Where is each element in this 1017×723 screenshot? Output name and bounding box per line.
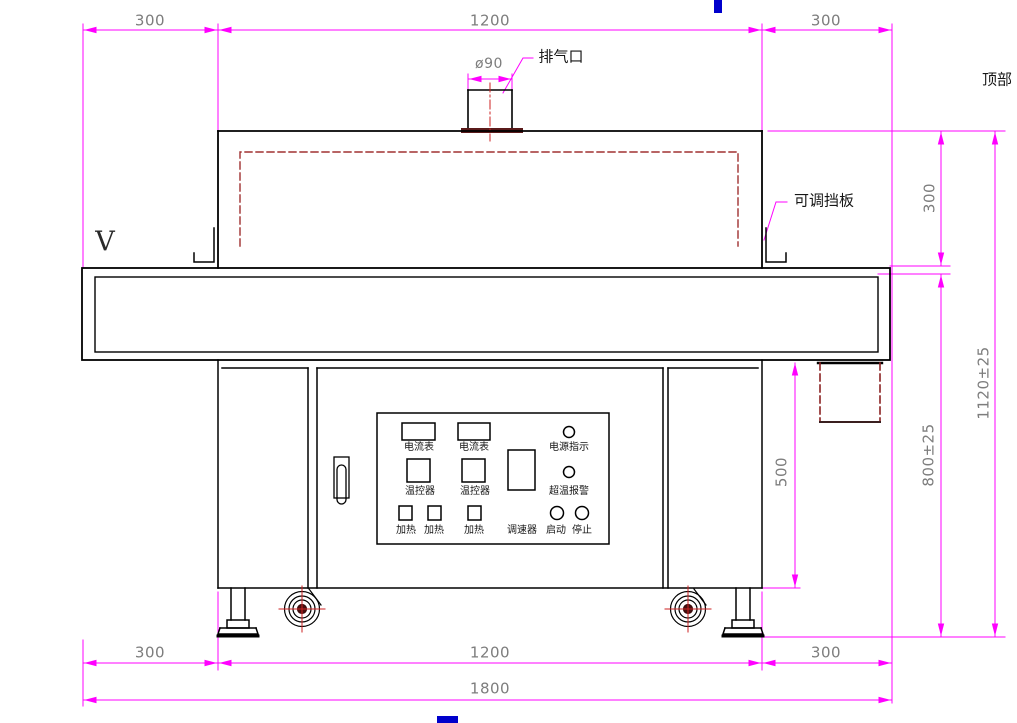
ammeter-1-label: 电流表 [404,443,434,453]
cursor-mark-top [714,0,722,13]
dim-bottom-center: 1200 [470,646,510,661]
ammeter-1-display [402,423,435,440]
heater-switch-1 [399,506,412,520]
ammeter-2-display [458,423,490,440]
left-leveling-foot [218,588,258,636]
dim-top-center: 1200 [470,14,510,29]
cursor-marks [437,0,722,723]
lower-cabinet [218,360,762,588]
power-indicator-label: 电源指示 [549,443,589,453]
heater-1-label: 加热 [396,526,416,536]
adjustable-baffle-label: 可调挡板 [794,194,854,209]
dim-work-height: 800±25 [922,423,937,486]
drawing-canvas: 300 1200 300 ø90 排气口 顶部 可调挡板 V 300 1120±… [0,0,1017,723]
right-caster [665,586,711,632]
dim-cabinet-height: 500 [775,457,790,487]
side-mount-box [818,363,882,422]
exhaust-leader-line [503,58,533,93]
heater-3-label: 加热 [464,526,484,536]
drawing-linework [0,0,1017,723]
left-caster [279,586,325,632]
speed-controller-unit [508,450,535,490]
heater-duct-hidden-line [240,152,738,246]
right-baffle [766,228,786,262]
dim-exhaust-diameter: ø90 [475,57,503,71]
start-label: 启动 [546,526,566,536]
speed-controller-label: 调速器 [507,526,537,536]
temp-controller-2-label: 温控器 [460,487,490,497]
dimension-extension-lines [83,24,1005,706]
power-indicator-lamp [564,427,575,438]
baffle-leader-line [764,202,787,240]
top-marker-label: 顶部 [982,73,1012,88]
adjustable-baffles [194,228,786,262]
dim-bottom-left: 300 [135,646,165,661]
dim-tunnel-height: 300 [923,183,938,213]
stop-label: 停止 [572,526,592,536]
conveyor-outer [82,268,890,360]
dim-top-left: 300 [135,14,165,29]
leader-lines [503,58,787,240]
heater-2-label: 加热 [424,526,444,536]
dim-bottom-right: 300 [811,646,841,661]
view-marker-v: V [95,229,115,256]
left-baffle [194,228,214,262]
dim-overall-height: 1120±25 [977,346,992,419]
dim-bottom-overall: 1800 [470,682,510,697]
tunnel-section [218,131,762,268]
overtemp-alarm-label: 超温报警 [549,487,589,497]
conveyor-inner [95,277,878,352]
heater-switch-2 [428,506,441,520]
door-handle [334,457,349,504]
temp-controller-1-display [407,459,430,482]
right-leveling-foot [723,588,763,636]
ammeter-2-label: 电流表 [459,443,489,453]
cursor-mark-bottom [437,716,458,723]
exhaust-port-label: 排气口 [538,50,583,65]
dim-top-right: 300 [811,14,841,29]
temp-controller-1-label: 温控器 [405,487,435,497]
start-button [551,507,564,520]
heater-switch-3 [468,506,481,520]
overtemp-alarm-lamp [564,467,575,478]
temp-controller-2-display [462,459,485,482]
stop-button [576,507,589,520]
conveyor-section [82,268,890,360]
exhaust-stack [461,83,523,141]
